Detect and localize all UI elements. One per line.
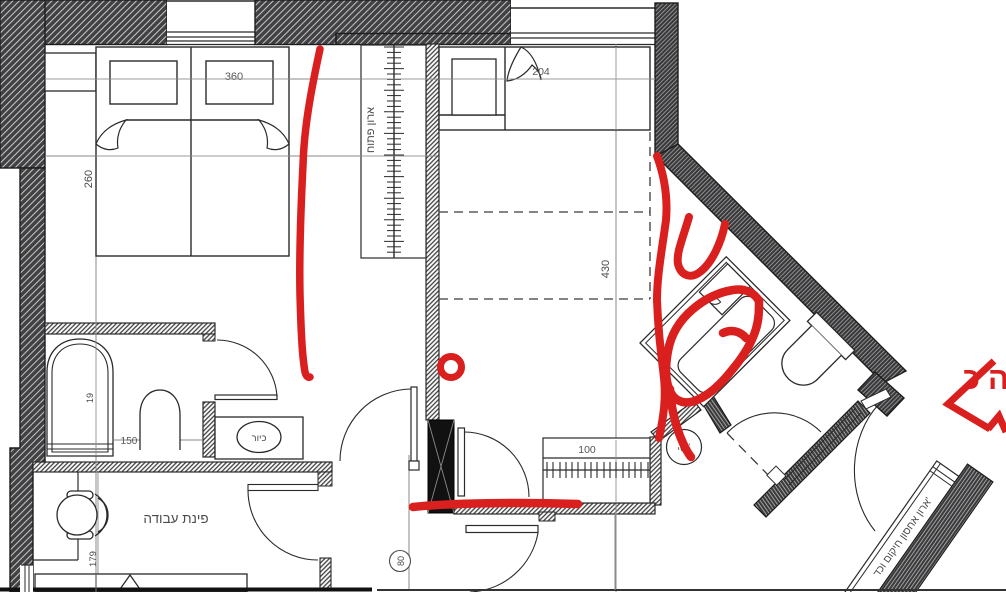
svg-text:260: 260: [83, 170, 95, 188]
svg-text:19: 19: [85, 393, 95, 403]
svg-text:204: 204: [532, 66, 550, 78]
svg-text:ה: ה: [988, 361, 1006, 396]
svg-text:80: 80: [396, 556, 406, 566]
svg-text:430: 430: [600, 260, 612, 278]
svg-text:360: 360: [225, 71, 243, 83]
svg-text:כ: כ: [963, 361, 980, 396]
svg-text:100: 100: [578, 444, 596, 456]
svg-text:179: 179: [88, 551, 99, 567]
svg-text:ארון פתוח: ארון פתוח: [365, 107, 377, 153]
svg-text:פינת עבודה: פינת עבודה: [143, 511, 208, 526]
svg-text:150: 150: [121, 436, 138, 447]
svg-text:כיור: כיור: [252, 433, 267, 444]
